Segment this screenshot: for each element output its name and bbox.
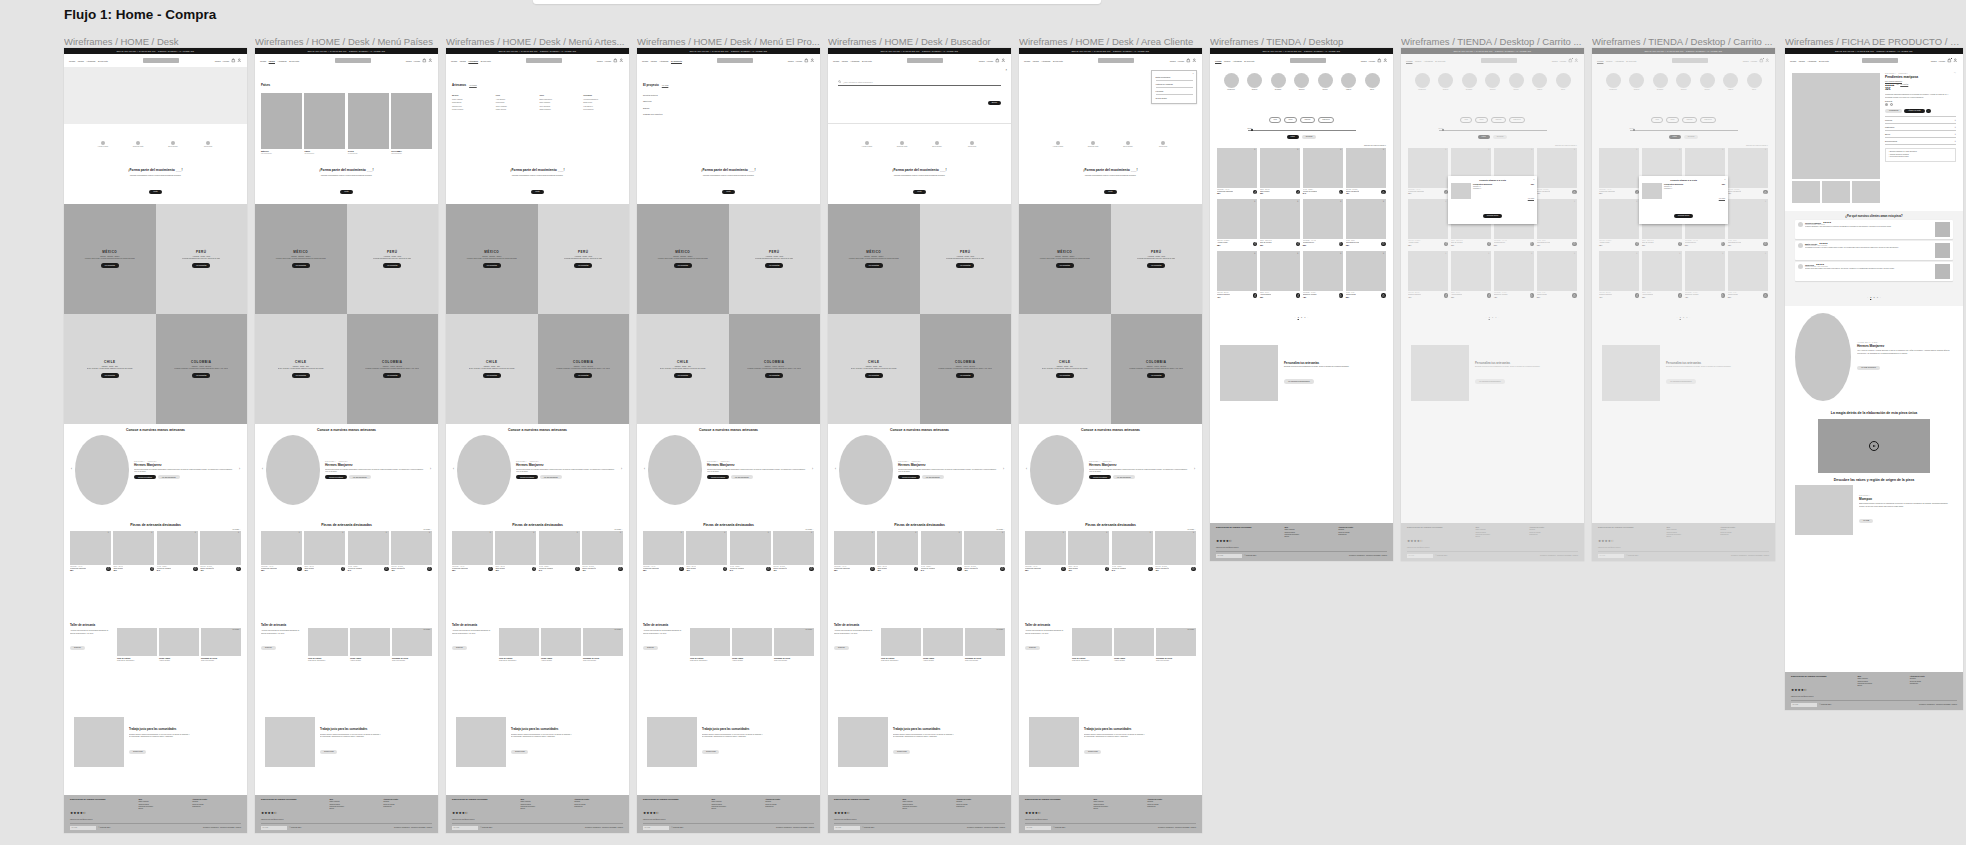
add-to-cart-button[interactable]	[723, 567, 728, 572]
legal-links[interactable]: Términos y condiciones · Política de pri…	[1919, 704, 1957, 705]
color-swatch-1[interactable]	[1885, 103, 1888, 106]
country-products-button[interactable]: Ver productos	[1056, 263, 1074, 267]
heart-icon[interactable]: ♥	[490, 532, 491, 534]
country-tile[interactable]: PERÚAyacucho · Cusco · PunoTécnicas ance…	[538, 204, 630, 314]
add-to-cart-button[interactable]	[1339, 242, 1344, 247]
artisan-crafts-button[interactable]: Ver sus artesanías	[540, 475, 562, 479]
filter-pill[interactable]: Color	[1284, 117, 1297, 123]
workshop-card[interactable]: Repujado de cueroJosé Luis Quiroga	[583, 628, 623, 699]
country-products-button[interactable]: Ver productos	[101, 263, 119, 267]
nav-item-países[interactable]: Países	[1799, 60, 1805, 62]
country-tile[interactable]: COLOMBIAMompox · Wayuu · BoyacáFiligrana…	[920, 314, 1012, 424]
add-to-cart-button[interactable]	[1296, 242, 1301, 247]
artisan-story-button[interactable]: Conoce su historia	[1089, 475, 1111, 479]
country-tile[interactable]: MÉXICOOaxaca · Chiapas · JaliscoAlebrije…	[637, 204, 729, 314]
slider-track[interactable]	[1248, 130, 1356, 131]
see-all-workshops-link[interactable]: Ver todos →	[805, 629, 814, 630]
footer-link[interactable]: Seguimiento	[956, 806, 1005, 808]
legal-links[interactable]: Términos y condiciones · Política de pri…	[585, 827, 623, 828]
page-number[interactable]: 1	[1298, 316, 1299, 318]
bag-icon[interactable]	[231, 58, 236, 63]
carousel-next-arrow[interactable]: ›	[239, 468, 240, 471]
favorite-button[interactable]: ♡	[1926, 109, 1931, 114]
country-menu-item[interactable]: COLOMBIA112 artesanías	[391, 93, 432, 154]
nav-item-tienda[interactable]: Tienda	[1024, 60, 1030, 62]
artisan-crafts-button[interactable]: Ver sus artesanías	[1113, 475, 1135, 479]
heart-icon[interactable]: ♥	[342, 532, 343, 534]
legal-links[interactable]: Términos y condiciones · Política de pri…	[394, 827, 432, 828]
heart-icon[interactable]: ♥	[1383, 149, 1384, 151]
add-to-cart-button[interactable]	[427, 567, 432, 572]
workshop-card[interactable]: Tejido YaguaÁngela Rengifo	[159, 628, 199, 699]
add-to-cart-button[interactable]	[809, 567, 814, 572]
country-products-button[interactable]: Ver productos	[674, 373, 692, 377]
user-icon[interactable]	[428, 58, 433, 63]
add-to-cart-button[interactable]	[914, 567, 919, 572]
page-number[interactable]: 2	[1873, 296, 1874, 298]
workshop-card[interactable]: Tejido YaguaÁngela Rengifo	[923, 628, 963, 699]
search-bar[interactable]	[1098, 58, 1134, 63]
workshop-card[interactable]: Repujado de cueroJosé Luis Quiroga	[1156, 628, 1196, 699]
see-all-workshops-link[interactable]: Ver todos →	[232, 629, 241, 630]
country-tile[interactable]: CHILEPomaire · Chiloé · RariEl crin, la …	[64, 314, 156, 424]
product-card[interactable]: ♥CHILE · GREDAFuente de Pomaire24€	[348, 531, 389, 572]
header-action-label[interactable]: Idioma	[1170, 60, 1176, 62]
see-all-workshops-link[interactable]: Ver todos →	[1187, 629, 1196, 630]
bag-icon[interactable]	[1947, 58, 1952, 63]
user-icon[interactable]	[619, 58, 624, 63]
country-tile[interactable]: PERÚAyacucho · Cusco · PunoTécnicas ance…	[347, 204, 439, 314]
country-tile[interactable]: COLOMBIAMompox · Wayuu · BoyacáFiligrana…	[729, 314, 821, 424]
search-bar[interactable]	[1862, 58, 1898, 63]
country-products-button[interactable]: Ver productos	[101, 373, 119, 377]
country-products-button[interactable]: Ver productos	[1147, 373, 1165, 377]
carousel-next-arrow[interactable]: ›	[812, 468, 813, 471]
carousel-prev-arrow[interactable]: ‹	[644, 468, 645, 471]
product-card[interactable]: ♥CHILE · LANAManta chilota52€	[1346, 251, 1386, 298]
header-action-label[interactable]: Idioma	[788, 60, 794, 62]
header-action-label[interactable]: Idioma	[597, 60, 603, 62]
product-thumbnail[interactable]	[1852, 181, 1880, 203]
product-card[interactable]: ♥COLOMBIA · PLATAPendientes mariposa32€	[1025, 531, 1066, 572]
heart-icon[interactable]: ♥	[681, 532, 682, 534]
page-number[interactable]: 3	[1304, 316, 1305, 318]
workshop-card[interactable]: Telar de cinturaRosa Elena Jacanamijoy	[690, 628, 730, 699]
user-icon[interactable]	[237, 58, 242, 63]
workshop-book-button[interactable]: Reservar	[834, 646, 849, 650]
legal-links[interactable]: Términos y condiciones · Política de pri…	[1349, 555, 1387, 556]
fair-trade-button[interactable]: Conoce más	[511, 750, 528, 754]
nav-item-artesanos[interactable]: Artesanos	[1807, 60, 1816, 62]
footer-link[interactable]: Envíos	[329, 808, 378, 810]
heart-icon[interactable]: ♥	[1340, 149, 1341, 151]
product-card[interactable]: ♥PERÚ · TEXTILTapiz andino30€	[1068, 531, 1109, 572]
product-card[interactable]: ♥COLOMBIA · PLATAPendientes mariposa32€	[834, 531, 875, 572]
heart-icon[interactable]: ♥	[1297, 201, 1298, 203]
see-more-link[interactable]: Ver más	[662, 84, 669, 86]
product-card[interactable]: ♥CHILE · GREDAFuente de Pomaire24€	[539, 531, 580, 572]
accordion-row[interactable]: Envío∨	[1885, 130, 1956, 137]
search-bar[interactable]	[907, 58, 943, 63]
country-tile[interactable]: COLOMBIAMompox · Wayuu · BoyacáFiligrana…	[538, 314, 630, 424]
header-action-label[interactable]: Acceder	[1938, 60, 1945, 62]
header-action-label[interactable]: Idioma	[979, 60, 985, 62]
footer-link[interactable]: Seguimiento	[1338, 534, 1387, 536]
heart-icon[interactable]: ♥	[1340, 253, 1341, 255]
carousel-next-arrow[interactable]: ›	[1194, 468, 1195, 471]
add-to-cart-button[interactable]	[766, 567, 771, 572]
country-products-button[interactable]: Ver productos	[956, 263, 974, 267]
product-card[interactable]: ♥MÉXICO · BARROJarrón oaxaqueño45€	[773, 531, 814, 572]
filter-pill[interactable]: País	[1269, 117, 1282, 123]
craft-video[interactable]	[1818, 419, 1930, 473]
newsletter-input[interactable]: Tu email	[643, 826, 669, 830]
country-products-button[interactable]: Ver productos	[483, 373, 501, 377]
country-tile[interactable]: PERÚAyacucho · Cusco · PunoTécnicas ance…	[156, 204, 248, 314]
page-arrow[interactable]: ‹	[1295, 316, 1296, 318]
add-to-cart-button[interactable]	[236, 567, 241, 572]
country-tile[interactable]: COLOMBIAMompox · Wayuu · BoyacáFiligrana…	[347, 314, 439, 424]
header-action-label[interactable]: Acceder	[986, 60, 993, 62]
product-card[interactable]: ♥CHILE · GREDAFuente de Pomaire24€	[1112, 531, 1153, 572]
add-to-cart-button[interactable]	[575, 567, 580, 572]
nav-item-artesanos[interactable]: Artesanos	[278, 60, 287, 62]
country-products-button[interactable]: Ver productos	[292, 263, 310, 267]
search-submit-button[interactable]: Buscar	[988, 101, 1001, 105]
see-all-workshops-link[interactable]: Ver todos →	[423, 629, 432, 630]
header-action-label[interactable]: Acceder	[604, 60, 611, 62]
see-reviews-link[interactable]: Ver reseñas	[1900, 84, 1908, 85]
add-to-cart-button[interactable]	[1381, 293, 1386, 298]
nav-item-tienda[interactable]: Tienda	[833, 60, 839, 62]
header-action-label[interactable]: Idioma	[406, 60, 412, 62]
country-tile[interactable]: PERÚAyacucho · Cusco · PunoTécnicas ance…	[729, 204, 821, 314]
product-card[interactable]: ♥CHILE · CRINMariposas de Rari18€	[1346, 199, 1386, 246]
product-card[interactable]: ♥COLOMBIA · PLATAPendientes mariposa32€	[261, 531, 302, 572]
bag-icon[interactable]	[422, 58, 427, 63]
sort-dropdown[interactable]: Ordenar por: más relevantes ∨	[1210, 145, 1393, 146]
join-button[interactable]: Únete	[149, 190, 162, 194]
country-tile[interactable]: CHILEPomaire · Chiloé · RariEl crin, la …	[1019, 314, 1111, 424]
product-thumbnail[interactable]	[1792, 181, 1820, 203]
heart-icon[interactable]: ♥	[811, 532, 812, 534]
artisan-story-button[interactable]: Conoce su historia	[325, 475, 347, 479]
add-to-cart-button[interactable]	[1381, 190, 1386, 195]
workshop-card[interactable]: Tejido YaguaÁngela Rengifo	[732, 628, 772, 699]
product-card[interactable]: ♥CHILE · GREDAFuente de Pomaire24€	[157, 531, 198, 572]
search-input[interactable]: ¿Qué artesanía estás buscando?	[838, 80, 1001, 86]
account-menu-link[interactable]: Historial de compras	[1156, 81, 1193, 88]
search-bar[interactable]	[143, 58, 179, 63]
workshop-book-button[interactable]: Reservar	[1025, 646, 1040, 650]
close-icon[interactable]: ×	[1005, 70, 1007, 73]
add-to-cart-button[interactable]	[1253, 242, 1258, 247]
nav-item-países[interactable]: Países	[460, 60, 466, 62]
carousel-prev-arrow[interactable]: ‹	[262, 468, 263, 471]
project-menu-link[interactable]: Nuestra historia	[643, 94, 814, 96]
heart-icon[interactable]: ♥	[1254, 201, 1255, 203]
legal-links[interactable]: Términos y condiciones · Política de pri…	[203, 827, 241, 828]
product-card[interactable]: ♥MÉXICO · BARROJarrón oaxaqueño45€	[1346, 148, 1386, 195]
heart-icon[interactable]: ♥	[194, 532, 195, 534]
view-cart-link[interactable]: Ver cesta	[1719, 198, 1725, 199]
country-tile[interactable]: MÉXICOOaxaca · Chiapas · JaliscoAlebrije…	[255, 204, 347, 314]
product-card[interactable]: ♥PERÚ · TEXTILTapiz andino30€	[113, 531, 154, 572]
artisan-story-button[interactable]: Conoce su historia	[134, 475, 156, 479]
user-icon[interactable]	[1192, 58, 1197, 63]
heart-icon[interactable]: ♥	[576, 532, 577, 534]
account-menu-link[interactable]: Favoritos	[1156, 88, 1193, 95]
product-card[interactable]: ♥PERÚ · TEXTILTapiz andino30€	[1260, 148, 1300, 195]
heart-icon[interactable]: ♥	[1297, 253, 1298, 255]
add-to-cart-button[interactable]	[1296, 293, 1301, 298]
add-to-cart-button[interactable]	[1191, 567, 1196, 572]
workshop-card[interactable]: Telar de cinturaRosa Elena Jacanamijoy	[881, 628, 921, 699]
bag-icon[interactable]	[995, 58, 1000, 63]
page-arrow[interactable]: ›	[1308, 316, 1309, 318]
account-menu-link[interactable]: Datos personales	[1156, 74, 1193, 81]
filter-pill[interactable]: Categoría	[1318, 117, 1335, 123]
footer-link[interactable]: Seguimiento	[765, 806, 814, 808]
user-icon[interactable]	[1383, 58, 1388, 63]
product-card[interactable]: ♥MÉXICO · MADERAAlebrije colibrí38€	[1217, 199, 1257, 246]
nav-item-tienda[interactable]: Tienda	[260, 60, 266, 62]
add-to-cart-button[interactable]	[150, 567, 155, 572]
add-to-cart-button[interactable]	[870, 567, 875, 572]
fair-trade-button[interactable]: Conoce más	[893, 750, 910, 754]
apply-filters-button[interactable]: Filtrar	[1287, 135, 1299, 139]
add-to-cart-button[interactable]	[384, 567, 389, 572]
country-products-button[interactable]: Ver productos	[1147, 263, 1165, 267]
search-bar[interactable]	[526, 58, 562, 63]
product-card[interactable]: ♥COLOMBIA · WAYUUMochila wayuu55€	[1303, 199, 1343, 246]
product-author-link[interactable]: Por Hermes Manjarrez	[1885, 80, 1956, 82]
header-action-label[interactable]: Acceder	[413, 60, 420, 62]
footer-link[interactable]: Seguimiento	[1147, 806, 1196, 808]
footer-link[interactable]: Envíos	[1093, 808, 1142, 810]
product-card[interactable]: ♥PERÚ · TEXTILTapiz andino30€	[495, 531, 536, 572]
add-to-cart-button[interactable]	[297, 567, 302, 572]
artisan-link[interactable]: Pedro Linares	[452, 108, 492, 111]
page-arrow[interactable]: ‹	[1867, 296, 1868, 298]
heart-icon[interactable]: ♥	[108, 532, 109, 534]
product-card[interactable]: ♥COLOMBIA · PLATAPendientes mariposa32€	[1217, 148, 1257, 195]
country-products-button[interactable]: Ver productos	[192, 263, 210, 267]
workshop-card[interactable]: Repujado de cueroJosé Luis Quiroga	[201, 628, 241, 699]
category-item[interactable]: Madera	[1339, 73, 1358, 117]
category-item[interactable]: Cuero	[1363, 73, 1382, 117]
header-action-label[interactable]: Idioma	[1361, 60, 1367, 62]
add-to-cart-button[interactable]	[532, 567, 537, 572]
product-card[interactable]: ♥PERÚ · TEXTILTapiz andino30€	[304, 531, 345, 572]
heart-icon[interactable]: ♥	[1106, 532, 1107, 534]
artisan-link[interactable]: Mario Ccopa	[496, 108, 536, 111]
nav-item-el-proyecto[interactable]: El proyecto	[1819, 60, 1829, 62]
fair-trade-button[interactable]: Conoce más	[129, 750, 146, 754]
add-to-cart-button[interactable]	[488, 567, 493, 572]
close-icon[interactable]: ×	[1724, 178, 1725, 180]
heart-icon[interactable]: ♥	[1193, 532, 1194, 534]
heart-icon[interactable]: ♥	[872, 532, 873, 534]
heart-icon[interactable]: ♥	[767, 532, 768, 534]
close-icon[interactable]: ×	[1193, 72, 1194, 74]
project-menu-link[interactable]: Equipo	[643, 107, 814, 109]
heart-icon[interactable]: ♥	[1297, 149, 1298, 151]
legal-links[interactable]: Términos y condiciones · Política de pri…	[967, 827, 1005, 828]
fair-trade-button[interactable]: Conoce más	[702, 750, 719, 754]
workshop-book-button[interactable]: Reservar	[261, 646, 276, 650]
nav-item-artesanos[interactable]: Artesanos	[1233, 60, 1242, 62]
add-to-cart-button[interactable]	[1381, 242, 1386, 247]
join-button[interactable]: Únete	[1104, 190, 1117, 194]
add-to-cart-button[interactable]	[1339, 293, 1344, 298]
country-tile[interactable]: COLOMBIAMompox · Wayuu · BoyacáFiligrana…	[1111, 314, 1203, 424]
legal-links[interactable]: Términos y condiciones · Política de pri…	[1158, 827, 1196, 828]
footer-link[interactable]: Envíos	[902, 808, 951, 810]
workshop-card[interactable]: Repujado de cueroJosé Luis Quiroga	[965, 628, 1005, 699]
heart-icon[interactable]: ♥	[1254, 253, 1255, 255]
header-action-label[interactable]: Idioma	[1931, 60, 1937, 62]
user-icon[interactable]	[1001, 58, 1006, 63]
country-tile[interactable]: CHILEPomaire · Chiloé · RariEl crin, la …	[255, 314, 347, 424]
nav-item-el-proyecto[interactable]: El proyecto	[1053, 60, 1063, 62]
product-card[interactable]: ♥MÉXICO · BARROJarrón oaxaqueño45€	[391, 531, 432, 572]
product-card[interactable]: ♥MÉXICO · BARROJarrón oaxaqueño45€	[1155, 531, 1196, 572]
heart-icon[interactable]: ♥	[620, 532, 621, 534]
country-products-button[interactable]: Ver productos	[865, 373, 883, 377]
country-tile[interactable]: COLOMBIAMompox · Wayuu · BoyacáFiligrana…	[156, 314, 248, 424]
search-bar[interactable]	[717, 58, 753, 63]
user-icon[interactable]	[810, 58, 815, 63]
nav-item-el-proyecto[interactable]: El proyecto	[481, 60, 491, 62]
nav-item-países[interactable]: Países	[842, 60, 848, 62]
close-icon[interactable]: ×	[1533, 178, 1534, 180]
newsletter-input[interactable]: Tu email	[1216, 554, 1242, 558]
heart-icon[interactable]: ♥	[151, 532, 152, 534]
country-products-button[interactable]: Ver productos	[765, 373, 783, 377]
artisan-link[interactable]: Lola Romero	[583, 108, 623, 111]
carousel-prev-arrow[interactable]: ‹	[835, 468, 836, 471]
nav-item-el-proyecto[interactable]: El proyecto	[671, 60, 682, 62]
country-menu-item[interactable]: MÉXICO124 artesanías	[261, 93, 302, 154]
carousel-next-arrow[interactable]: ›	[1003, 468, 1004, 471]
country-tile[interactable]: CHILEPomaire · Chiloé · RariEl crin, la …	[828, 314, 920, 424]
legal-links[interactable]: Términos y condiciones · Política de pri…	[776, 827, 814, 828]
project-menu-link[interactable]: Trabaja con nosotros	[643, 113, 814, 115]
project-menu-link[interactable]: Objetivos	[643, 100, 814, 102]
product-card[interactable]: ♥PERÚ · CERÁMICAToro de Pucará30€	[1260, 199, 1300, 246]
see-all-workshops-link[interactable]: Ver todos →	[614, 629, 623, 630]
newsletter-input[interactable]: Tu email	[261, 826, 287, 830]
workshop-card[interactable]: Tejido YaguaÁngela Rengifo	[541, 628, 581, 699]
heart-icon[interactable]: ♥	[238, 532, 239, 534]
header-action-label[interactable]: Acceder	[1177, 60, 1184, 62]
nav-item-el-proyecto[interactable]: El proyecto	[1244, 60, 1254, 62]
heart-icon[interactable]: ♥	[429, 532, 430, 534]
page-arrow[interactable]: ›	[1880, 296, 1881, 298]
heart-icon[interactable]: ♥	[299, 532, 300, 534]
header-action-label[interactable]: Acceder	[222, 60, 229, 62]
join-button[interactable]: Únete	[722, 190, 735, 194]
join-button[interactable]: Únete	[340, 190, 353, 194]
page-number[interactable]: 2	[1301, 316, 1302, 318]
heart-icon[interactable]: ♥	[1002, 532, 1003, 534]
product-card[interactable]: ♥COLOMBIA · PLATAPendientes mariposa32€	[70, 531, 111, 572]
product-card[interactable]: ♥COLOMBIA · PLATAPendientes mariposa32€	[452, 531, 493, 572]
footer-link[interactable]: Seguimiento	[574, 806, 623, 808]
country-tile[interactable]: CHILEPomaire · Chiloé · RariEl crin, la …	[446, 314, 538, 424]
newsletter-input[interactable]: Tu email	[1025, 826, 1051, 830]
carousel-next-arrow[interactable]: ›	[621, 468, 622, 471]
country-products-button[interactable]: Ver productos	[765, 263, 783, 267]
workshop-book-button[interactable]: Reservar	[452, 646, 467, 650]
product-card[interactable]: ♥PERÚ · TEXTILTapiz andino30€	[686, 531, 727, 572]
country-products-button[interactable]: Ver productos	[1056, 373, 1074, 377]
artisan-link[interactable]: Olga Llanquín	[540, 108, 580, 111]
user-icon[interactable]	[1953, 58, 1958, 63]
newsletter-input[interactable]: Tu email	[70, 826, 96, 830]
footer-link[interactable]: Envíos	[711, 808, 760, 810]
nav-item-países[interactable]: Países	[1033, 60, 1039, 62]
artisan-crafts-button[interactable]: Ver sus artesanías	[158, 475, 180, 479]
play-icon[interactable]	[1869, 441, 1879, 451]
country-tile[interactable]: MÉXICOOaxaca · Chiapas · JaliscoAlebrije…	[64, 204, 156, 314]
nav-item-artesanos[interactable]: Artesanos	[86, 60, 95, 62]
join-button[interactable]: Únete	[913, 190, 926, 194]
heart-icon[interactable]: ♥	[533, 532, 534, 534]
nav-item-países[interactable]: Países	[1224, 60, 1230, 62]
add-to-cart-button[interactable]: Añadir a la cesta	[1904, 109, 1925, 113]
reset-filters-button[interactable]: Reiniciar	[1302, 135, 1317, 139]
category-item[interactable]: Cerámica	[1269, 73, 1288, 117]
workshop-card[interactable]: Repujado de cueroJosé Luis Quiroga	[392, 628, 432, 699]
product-card[interactable]: ♥MÉXICO · BARROJarrón oaxaqueño45€	[200, 531, 241, 572]
add-to-cart-button[interactable]	[679, 567, 684, 572]
header-action-label[interactable]: Acceder	[1368, 60, 1375, 62]
nav-item-el-proyecto[interactable]: El proyecto	[289, 60, 299, 62]
color-swatch-2[interactable]	[1890, 103, 1893, 106]
add-to-cart-button[interactable]	[193, 567, 198, 572]
account-menu-link[interactable]: Cerrar sesión	[1156, 95, 1193, 101]
carousel-next-arrow[interactable]: ›	[430, 468, 431, 471]
nav-item-artesanos[interactable]: Artesanos	[659, 60, 668, 62]
country-products-button[interactable]: Ver productos	[383, 263, 401, 267]
nav-item-el-proyecto[interactable]: El proyecto	[98, 60, 108, 62]
add-to-cart-button[interactable]	[957, 567, 962, 572]
artisan-story-button[interactable]: Conoce su historia	[707, 475, 729, 479]
workshop-card[interactable]: Telar de cinturaRosa Elena Jacanamijoy	[499, 628, 539, 699]
add-to-cart-button[interactable]	[341, 567, 346, 572]
bag-icon[interactable]	[804, 58, 809, 63]
country-menu-item[interactable]: PERÚ98 artesanías	[304, 93, 345, 154]
workshop-card[interactable]: Tejido YaguaÁngela Rengifo	[1114, 628, 1154, 699]
nav-item-países[interactable]: Países	[651, 60, 657, 62]
heart-icon[interactable]: ♥	[915, 532, 916, 534]
page-number[interactable]: 1	[1870, 296, 1871, 298]
header-action-label[interactable]: Acceder	[795, 60, 802, 62]
newsletter-input[interactable]: Tu email	[1791, 703, 1817, 707]
country-products-button[interactable]: Ver productos	[574, 263, 592, 267]
product-card[interactable]: ♥COLOMBIA · PALMASombrero vueltiao48€	[1303, 251, 1343, 298]
country-tile[interactable]: MÉXICOOaxaca · Chiapas · JaliscoAlebrije…	[1019, 204, 1111, 314]
country-tile[interactable]: MÉXICOOaxaca · Chiapas · JaliscoAlebrije…	[446, 204, 538, 314]
heart-icon[interactable]: ♥	[1340, 201, 1341, 203]
accordion-row[interactable]: Materiales∨	[1885, 123, 1956, 130]
filter-pill[interactable]: Material	[1300, 117, 1315, 123]
nav-item-tienda[interactable]: Tienda	[642, 60, 648, 62]
country-products-button[interactable]: Ver productos	[574, 373, 592, 377]
newsletter-input[interactable]: Tu email	[452, 826, 478, 830]
